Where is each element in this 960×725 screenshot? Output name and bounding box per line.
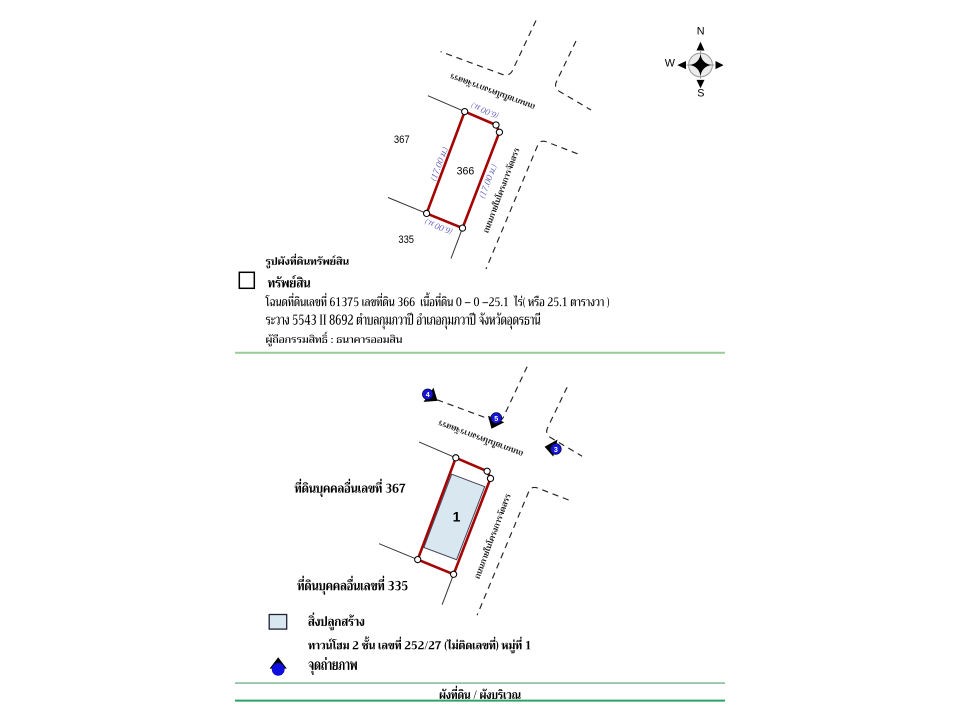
svg-text:W: W: [665, 58, 676, 70]
svg-text:366: 366: [457, 166, 475, 178]
svg-text:4: 4: [426, 390, 430, 399]
svg-text:3: 3: [554, 445, 558, 454]
svg-text:335: 335: [398, 234, 414, 246]
svg-text:S: S: [697, 88, 704, 100]
svg-text:1: 1: [453, 509, 461, 525]
svg-text:5: 5: [494, 414, 498, 423]
svg-text:367: 367: [394, 134, 410, 146]
svg-text:N: N: [697, 26, 705, 38]
